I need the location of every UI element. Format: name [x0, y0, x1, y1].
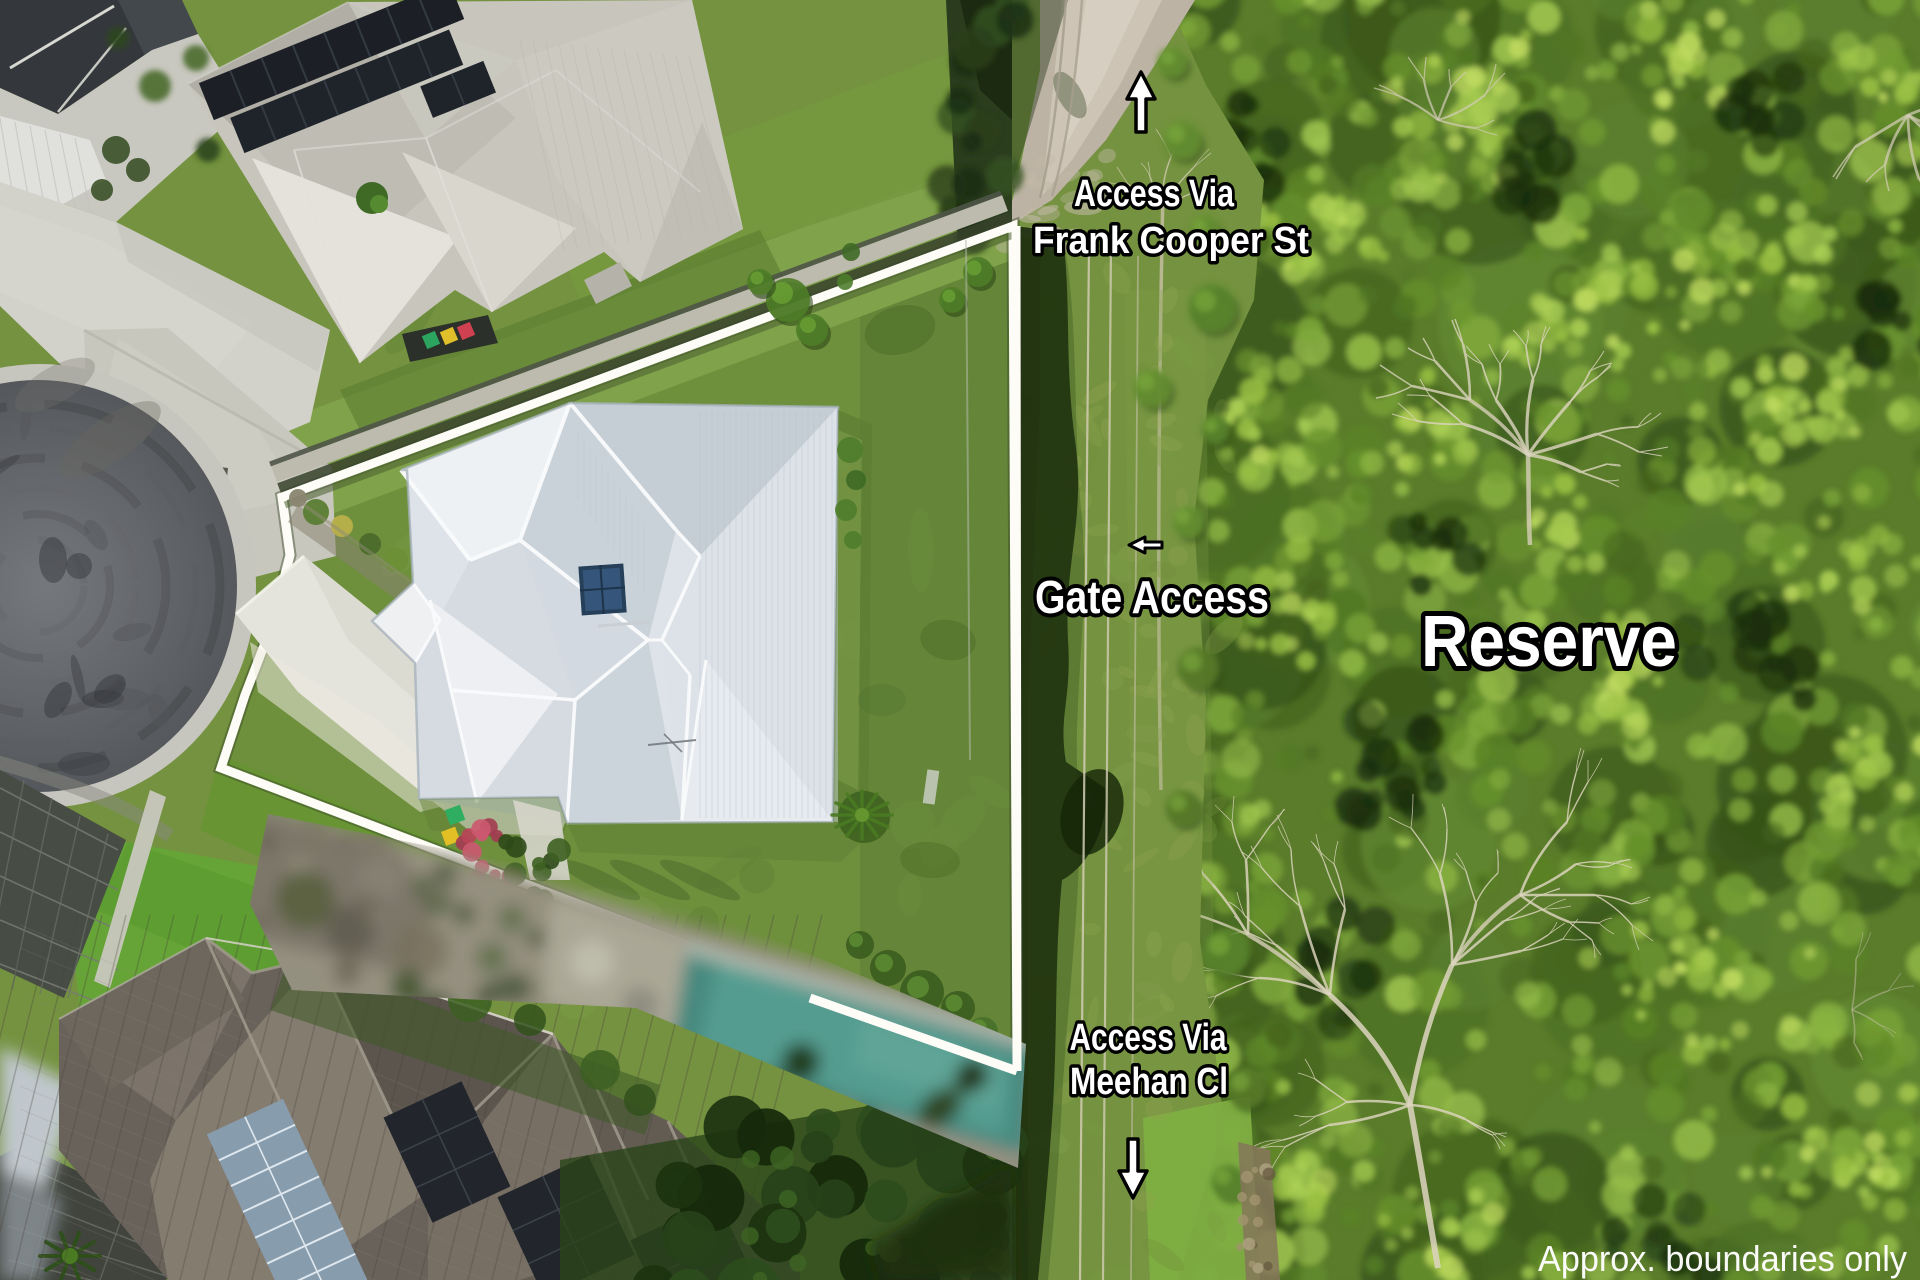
svg-text:Frank Cooper St: Frank Cooper St — [1033, 220, 1309, 262]
svg-text:Gate Access: Gate Access — [1035, 571, 1269, 623]
svg-text:Access Via: Access Via — [1070, 1017, 1228, 1059]
svg-text:Meehan Cl: Meehan Cl — [1070, 1061, 1228, 1103]
svg-text:Reserve: Reserve — [1421, 602, 1677, 682]
svg-text:Access Via: Access Via — [1074, 173, 1235, 215]
svg-text:Approx. boundaries only: Approx. boundaries only — [1538, 1238, 1907, 1279]
